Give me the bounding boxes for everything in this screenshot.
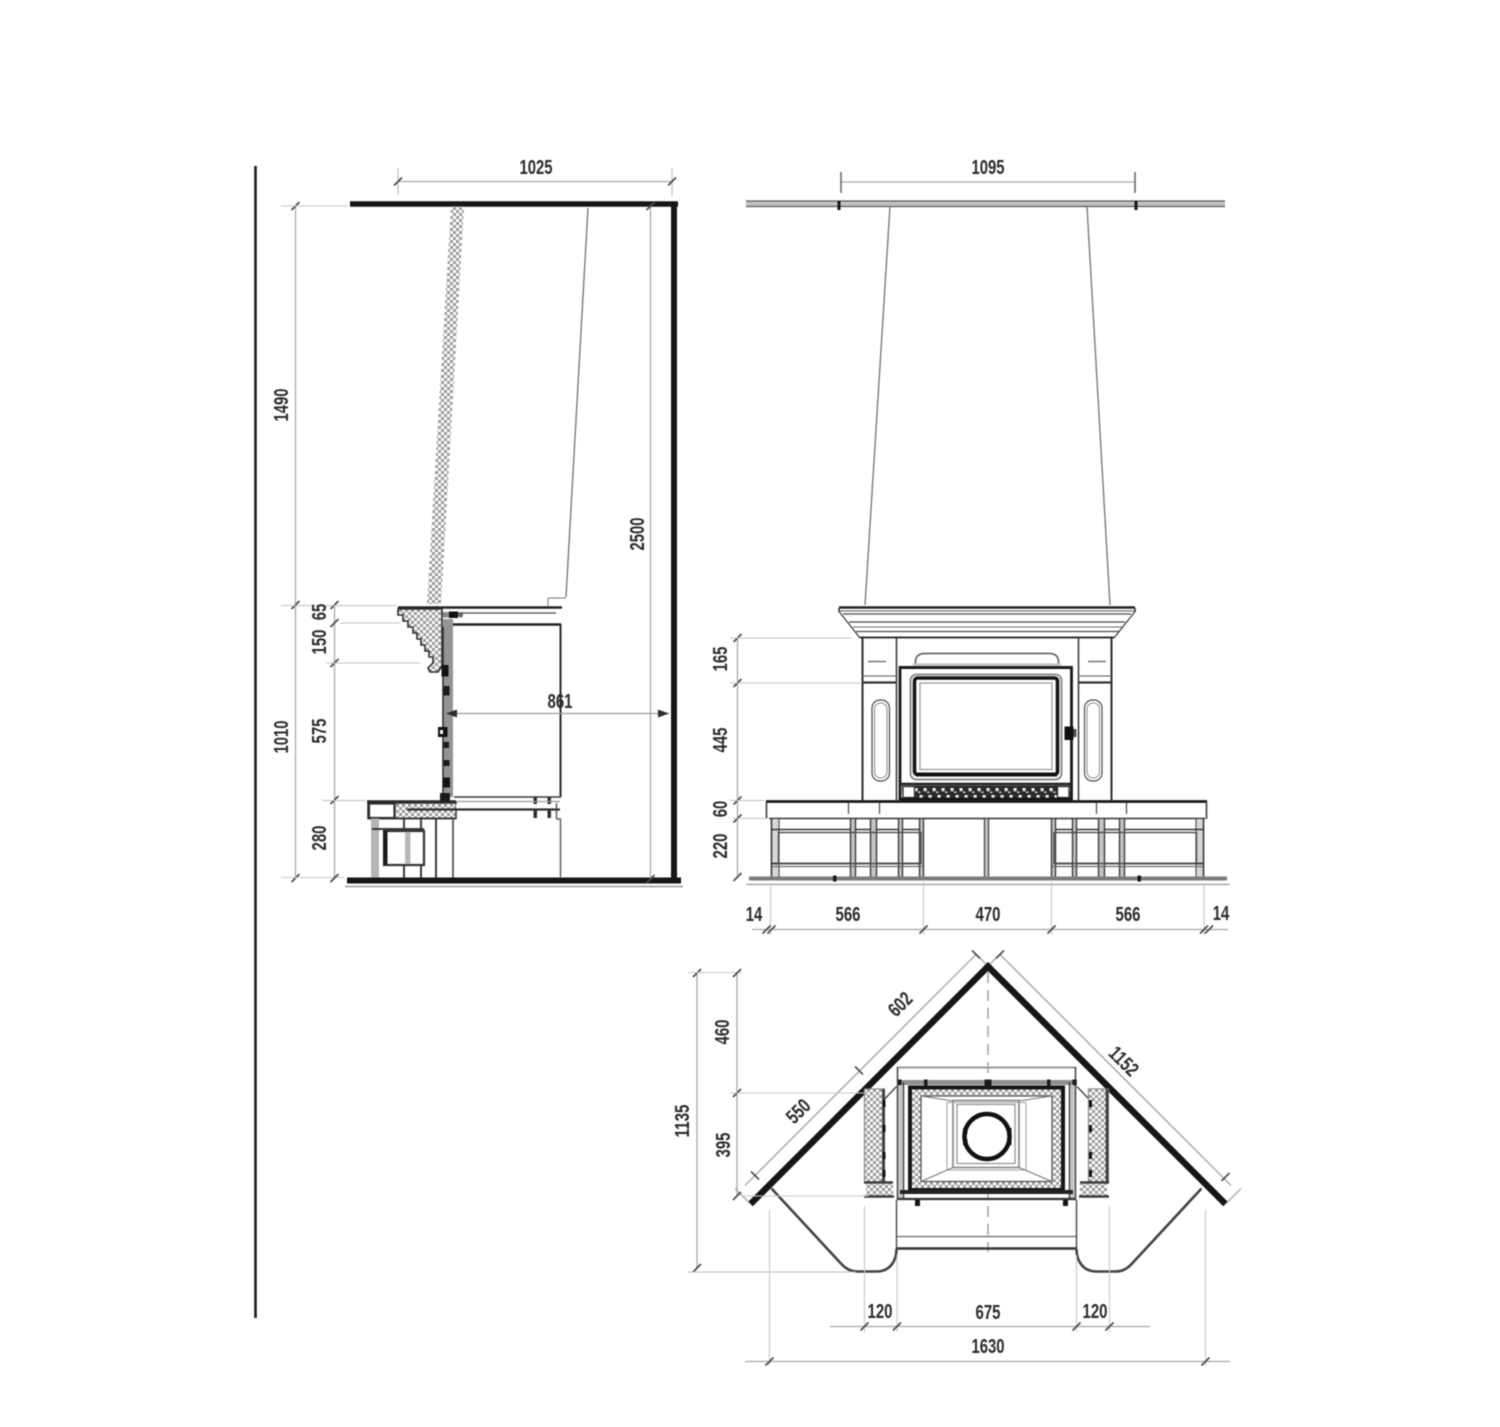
svg-text:460: 460 (712, 1020, 734, 1045)
svg-text:1010: 1010 (271, 721, 293, 754)
svg-text:550: 550 (782, 1095, 815, 1128)
svg-text:861: 861 (548, 691, 573, 713)
svg-text:602: 602 (884, 988, 917, 1021)
svg-text:395: 395 (713, 1133, 735, 1158)
svg-text:1025: 1025 (520, 157, 553, 179)
svg-text:1095: 1095 (972, 157, 1005, 179)
svg-text:280: 280 (309, 826, 331, 851)
svg-text:14: 14 (746, 904, 763, 926)
svg-text:14: 14 (1213, 903, 1230, 925)
svg-text:566: 566 (1116, 904, 1141, 926)
svg-text:575: 575 (309, 719, 331, 744)
svg-text:1630: 1630 (972, 1336, 1005, 1358)
svg-text:566: 566 (836, 904, 861, 926)
svg-text:675: 675 (976, 1302, 1001, 1324)
svg-text:150: 150 (309, 630, 331, 655)
svg-text:120: 120 (868, 1301, 893, 1323)
svg-text:1490: 1490 (271, 389, 293, 422)
svg-text:165: 165 (710, 647, 732, 672)
svg-text:120: 120 (1083, 1301, 1108, 1323)
svg-text:2500: 2500 (627, 518, 649, 551)
svg-text:470: 470 (976, 904, 1001, 926)
svg-text:1135: 1135 (672, 1105, 694, 1138)
svg-text:60: 60 (710, 801, 732, 818)
svg-text:1152: 1152 (1104, 1042, 1143, 1081)
svg-text:220: 220 (710, 834, 732, 859)
svg-text:65: 65 (309, 604, 331, 621)
svg-text:445: 445 (710, 728, 732, 753)
